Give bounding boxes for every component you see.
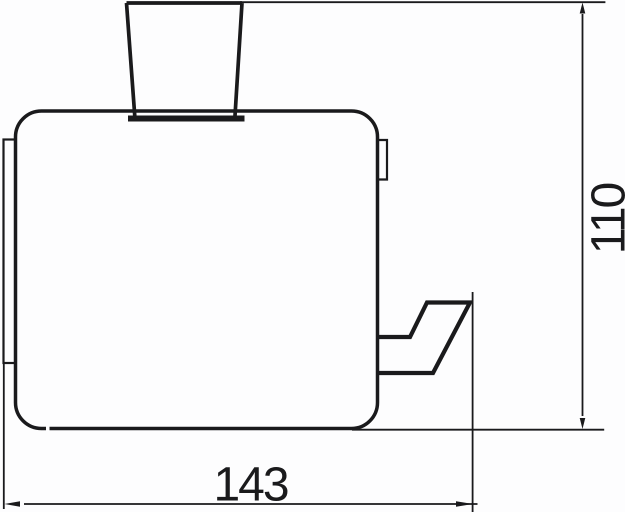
- svg-text:110: 110: [583, 183, 625, 254]
- svg-text:143: 143: [213, 459, 287, 512]
